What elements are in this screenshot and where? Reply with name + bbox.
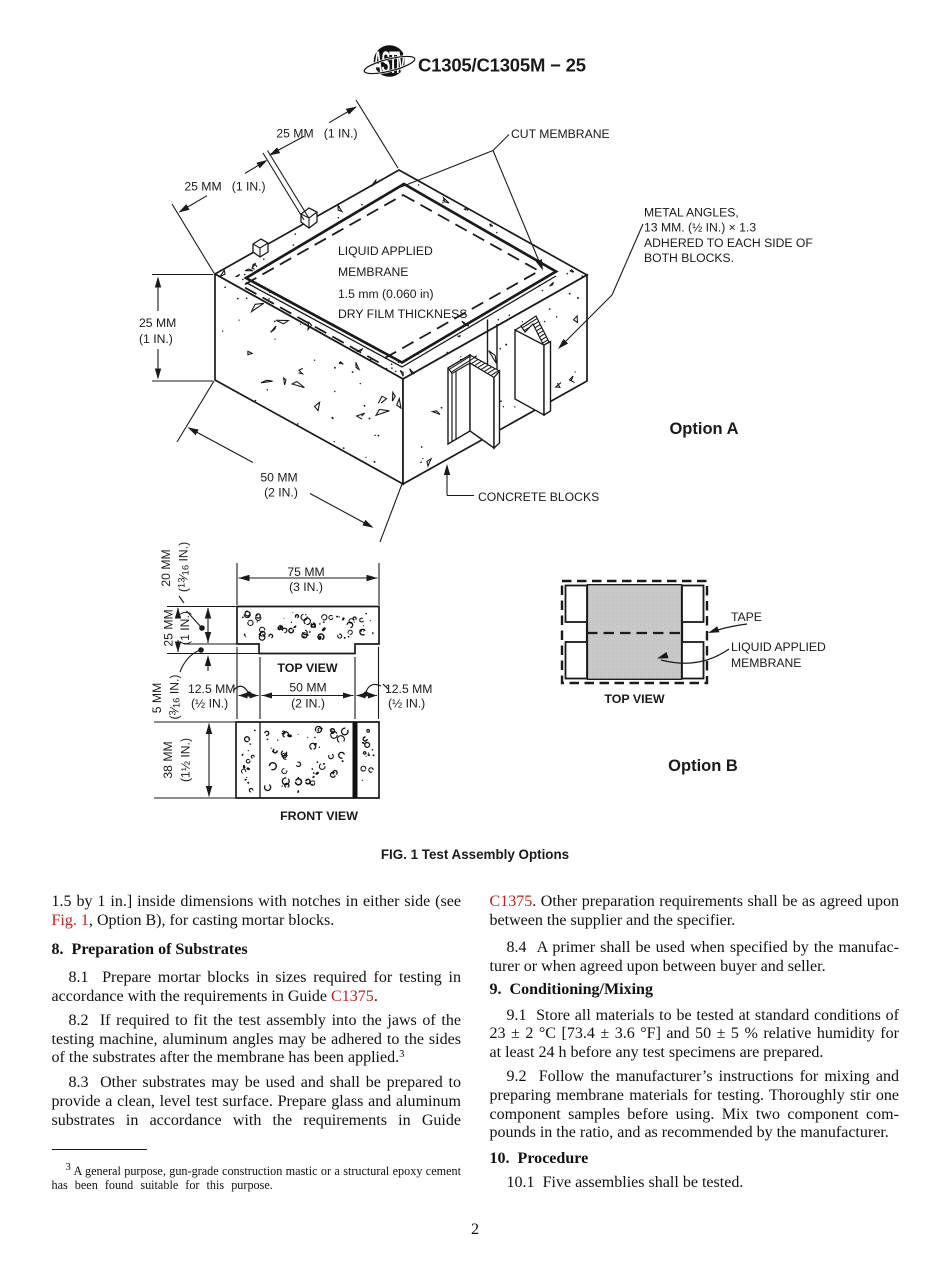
svg-text:Option B: Option B	[668, 757, 738, 775]
svg-text:LIQUID APPLIED: LIQUID APPLIED	[338, 244, 433, 258]
svg-text:(½ IN.): (½ IN.)	[191, 697, 228, 711]
svg-text:5 MM: 5 MM	[150, 683, 164, 713]
svg-text:1.5 mm (0.060 in): 1.5 mm (0.060 in)	[338, 287, 434, 301]
svg-text:75 MM: 75 MM	[287, 565, 324, 579]
svg-text:20 MM: 20 MM	[159, 549, 173, 586]
svg-text:DRY FILM THICKNESS: DRY FILM THICKNESS	[338, 307, 467, 321]
svg-text:BOTH BLOCKS.: BOTH BLOCKS.	[644, 251, 734, 265]
svg-text:TOP VIEW: TOP VIEW	[604, 692, 664, 706]
svg-text:METAL ANGLES,: METAL ANGLES,	[644, 206, 739, 220]
svg-text:(3⁄16 IN.): (3⁄16 IN.)	[168, 674, 183, 719]
svg-text:12.5 MM: 12.5 MM	[385, 682, 432, 696]
svg-text:50 MM: 50 MM	[260, 471, 297, 485]
svg-text:TOP VIEW: TOP VIEW	[277, 661, 337, 675]
svg-text:FIG. 1 Test Assembly Options: FIG. 1 Test Assembly Options	[381, 847, 569, 862]
svg-text:(1 IN.): (1 IN.)	[139, 332, 173, 346]
svg-text:(13⁄16 IN.): (13⁄16 IN.)	[177, 542, 192, 592]
svg-text:25 MM: 25 MM	[162, 609, 176, 646]
svg-text:(1½ IN.): (1½ IN.)	[179, 738, 193, 782]
svg-text:LIQUID APPLIED: LIQUID APPLIED	[731, 640, 826, 654]
svg-text:50 MM: 50 MM	[289, 681, 326, 695]
svg-text:Option A: Option A	[669, 420, 738, 438]
svg-text:(½ IN.): (½ IN.)	[388, 697, 425, 711]
svg-text:(2 IN.): (2 IN.)	[291, 697, 325, 711]
svg-text:TAPE: TAPE	[731, 610, 762, 624]
svg-text:ADHERED TO EACH SIDE OF: ADHERED TO EACH SIDE OF	[644, 236, 813, 250]
svg-text:CUT MEMBRANE: CUT MEMBRANE	[511, 127, 610, 141]
svg-text:MEMBRANE: MEMBRANE	[731, 656, 801, 670]
svg-text:13 MM. (½ IN.) × 1.3: 13 MM. (½ IN.) × 1.3	[644, 221, 756, 235]
svg-text:C1305/C1305M − 25: C1305/C1305M − 25	[418, 55, 586, 76]
svg-text:(3 IN.): (3 IN.)	[289, 580, 323, 594]
svg-text:38 MM: 38 MM	[161, 741, 175, 778]
svg-text:25 MM: 25 MM	[139, 316, 176, 330]
svg-text:MEMBRANE: MEMBRANE	[338, 265, 408, 279]
svg-text:CONCRETE BLOCKS: CONCRETE BLOCKS	[478, 490, 599, 504]
svg-text:FRONT VIEW: FRONT VIEW	[280, 809, 358, 823]
svg-text:25 MM (1 IN.): 25 MM (1 IN.)	[276, 127, 357, 141]
svg-text:12.5 MM: 12.5 MM	[188, 682, 235, 696]
svg-text:25 MM (1 IN.): 25 MM (1 IN.)	[184, 180, 265, 194]
svg-text:(1 IN.): (1 IN.)	[178, 611, 192, 645]
svg-text:(2 IN.): (2 IN.)	[264, 486, 298, 500]
